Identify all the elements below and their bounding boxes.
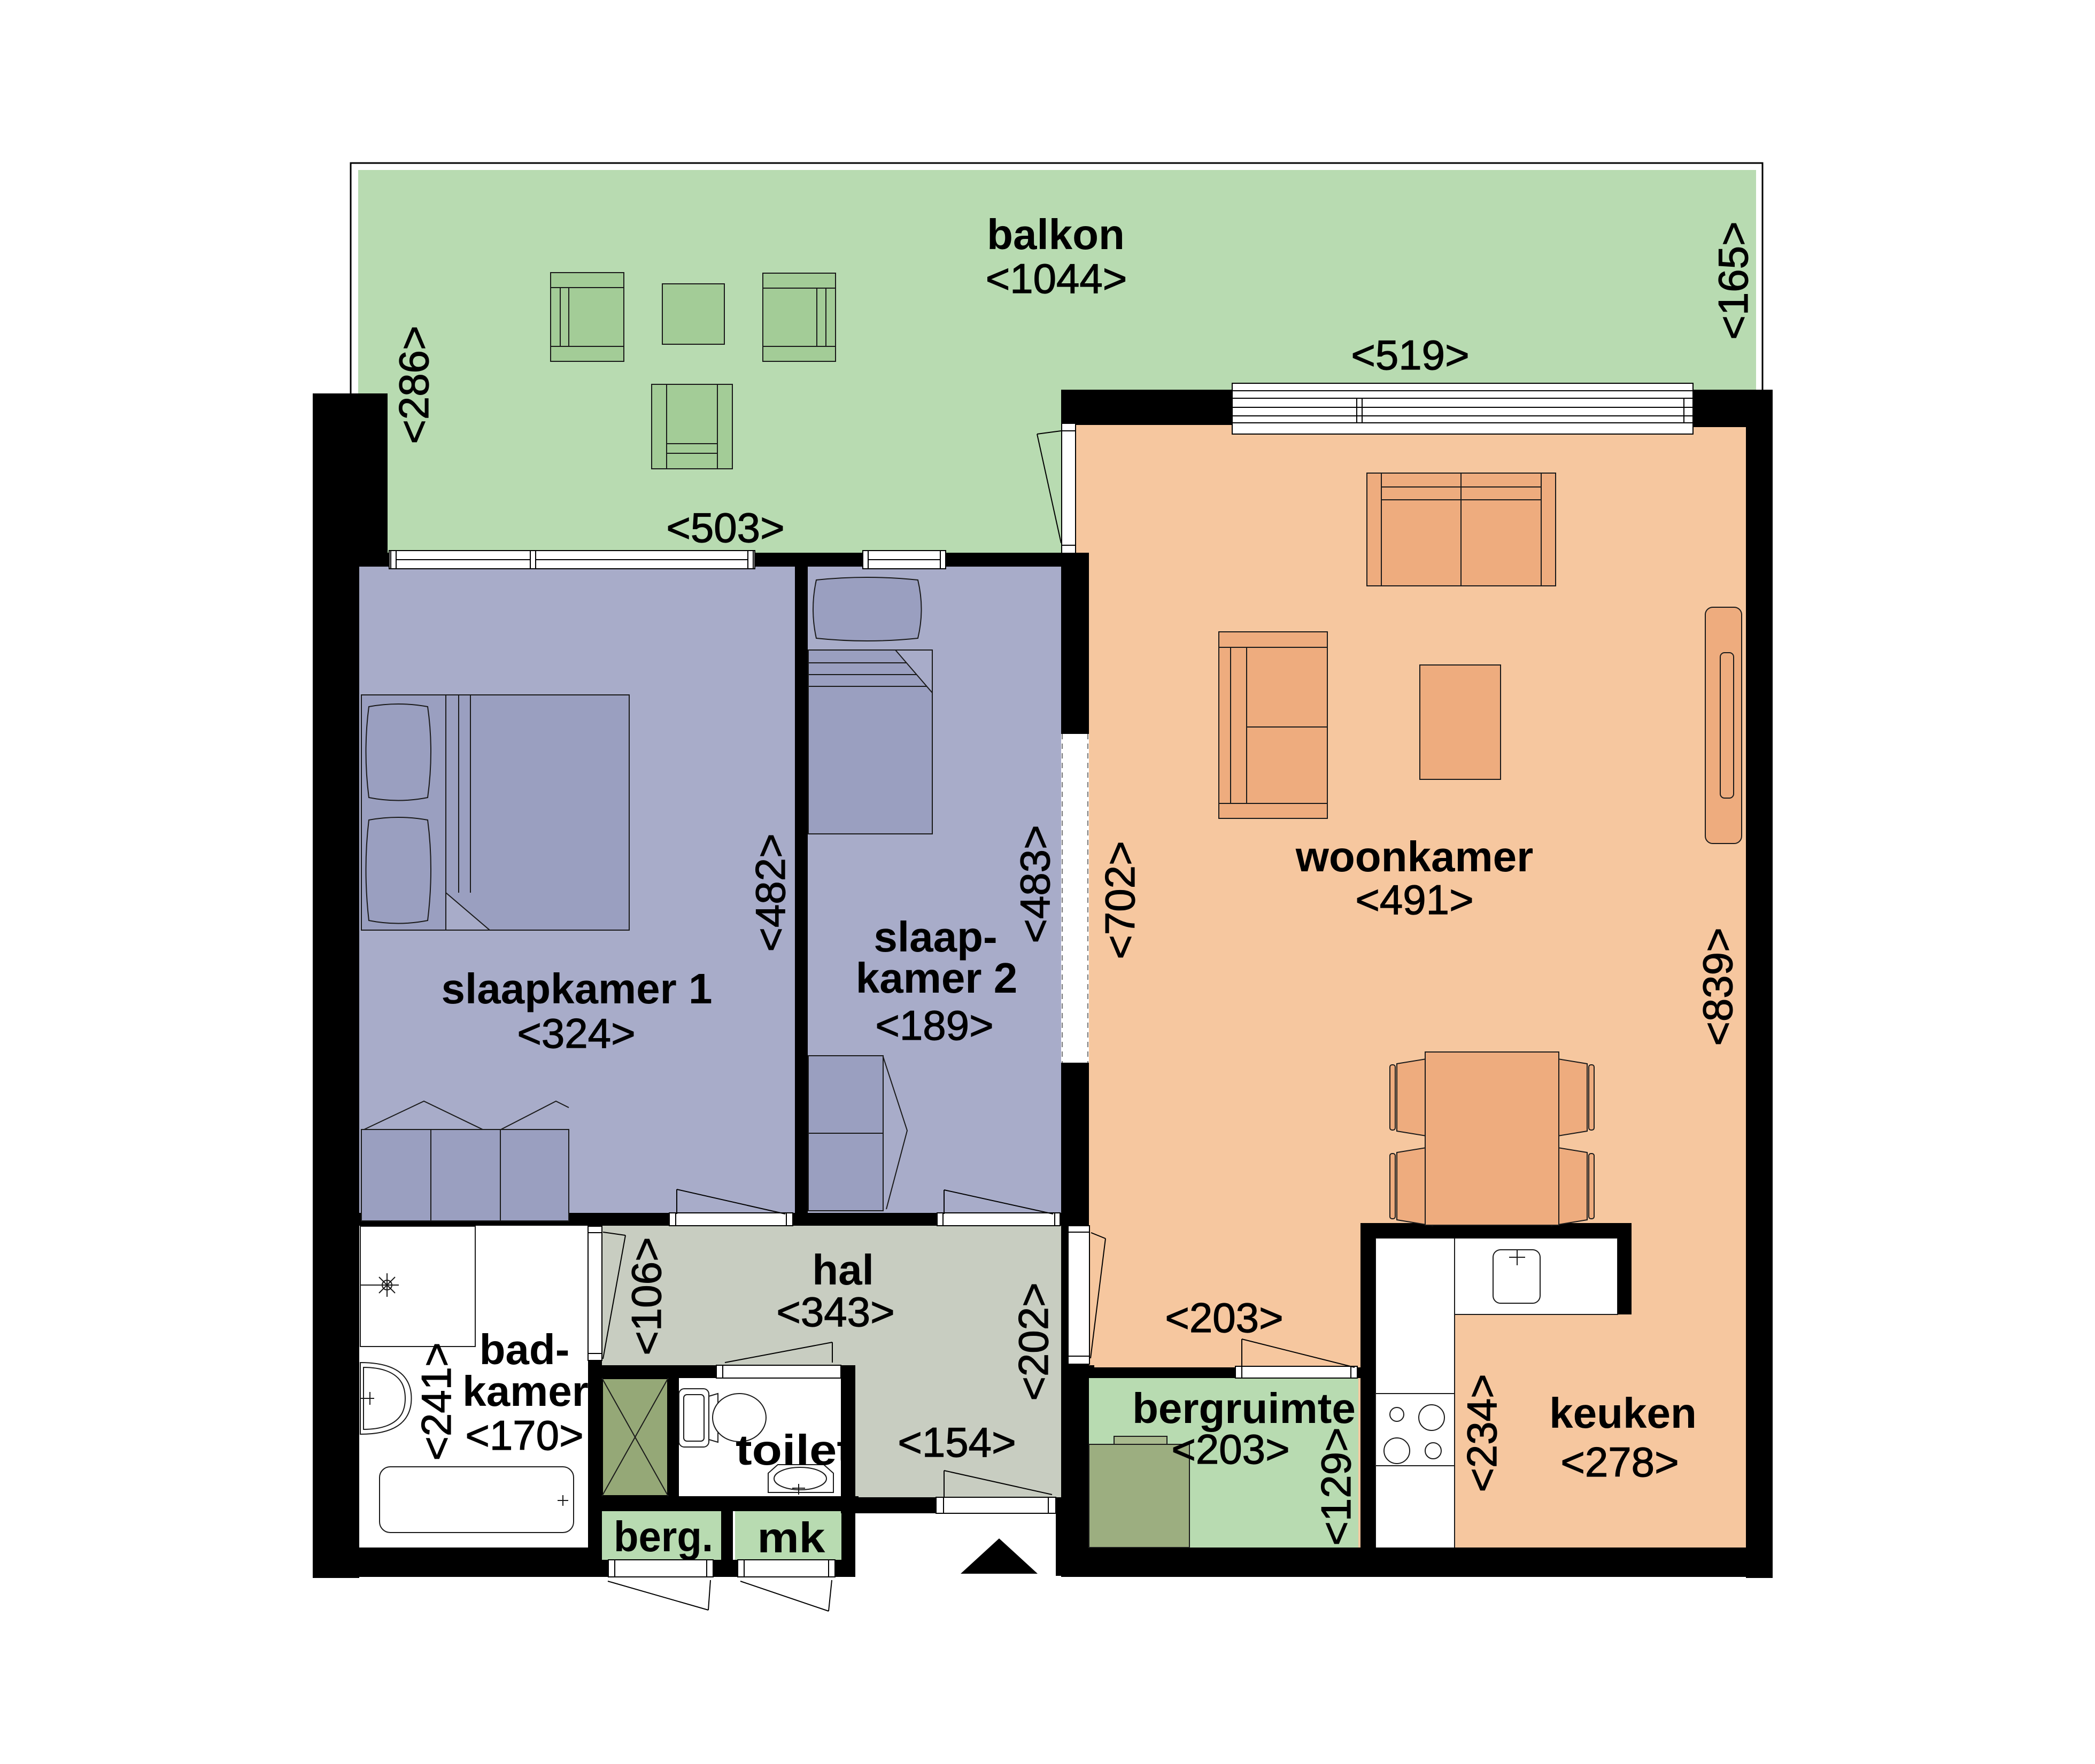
svg-text:kamer: kamer (462, 1367, 589, 1415)
svg-text:mk: mk (757, 1514, 826, 1561)
svg-text:<491>: <491> (1355, 876, 1473, 923)
svg-text:<702>: <702> (1096, 841, 1143, 959)
svg-text:balkon: balkon (987, 211, 1125, 258)
svg-text:<154>: <154> (898, 1419, 1016, 1466)
svg-text:<202>: <202> (1010, 1282, 1057, 1401)
svg-text:<519>: <519> (1351, 331, 1469, 378)
svg-text:toilet: toilet (736, 1426, 853, 1474)
svg-text:slaapkamer 1: slaapkamer 1 (441, 965, 712, 1012)
svg-text:woonkamer: woonkamer (1295, 833, 1534, 880)
svg-text:<324>: <324> (517, 1010, 635, 1057)
svg-text:keuken: keuken (1549, 1389, 1697, 1437)
svg-text:<170>: <170> (465, 1412, 583, 1459)
svg-text:<203>: <203> (1165, 1294, 1283, 1341)
svg-text:<839>: <839> (1694, 927, 1741, 1046)
svg-text:slaap-: slaap- (873, 913, 997, 961)
svg-text:<503>: <503> (666, 504, 784, 551)
svg-text:<234>: <234> (1458, 1374, 1505, 1492)
svg-text:<203>: <203> (1171, 1426, 1289, 1473)
svg-text:<129>: <129> (1312, 1427, 1359, 1545)
svg-text:<241>: <241> (413, 1342, 460, 1460)
svg-text:bad-: bad- (480, 1326, 570, 1373)
svg-text:<286>: <286> (390, 326, 437, 444)
svg-text:<165>: <165> (1710, 221, 1757, 339)
svg-text:hal: hal (812, 1246, 874, 1294)
svg-text:bergruimte: bergruimte (1132, 1384, 1356, 1432)
svg-text:<189>: <189> (875, 1002, 993, 1049)
svg-text:<106>: <106> (623, 1237, 670, 1355)
svg-text:<483>: <483> (1011, 825, 1058, 943)
svg-text:<343>: <343> (776, 1288, 894, 1335)
svg-text:<482>: <482> (747, 833, 794, 951)
svg-text:berg.: berg. (614, 1513, 713, 1560)
svg-text:<278>: <278> (1560, 1438, 1679, 1486)
svg-text:<1044>: <1044> (986, 255, 1127, 302)
svg-text:kamer 2: kamer 2 (856, 954, 1017, 1002)
